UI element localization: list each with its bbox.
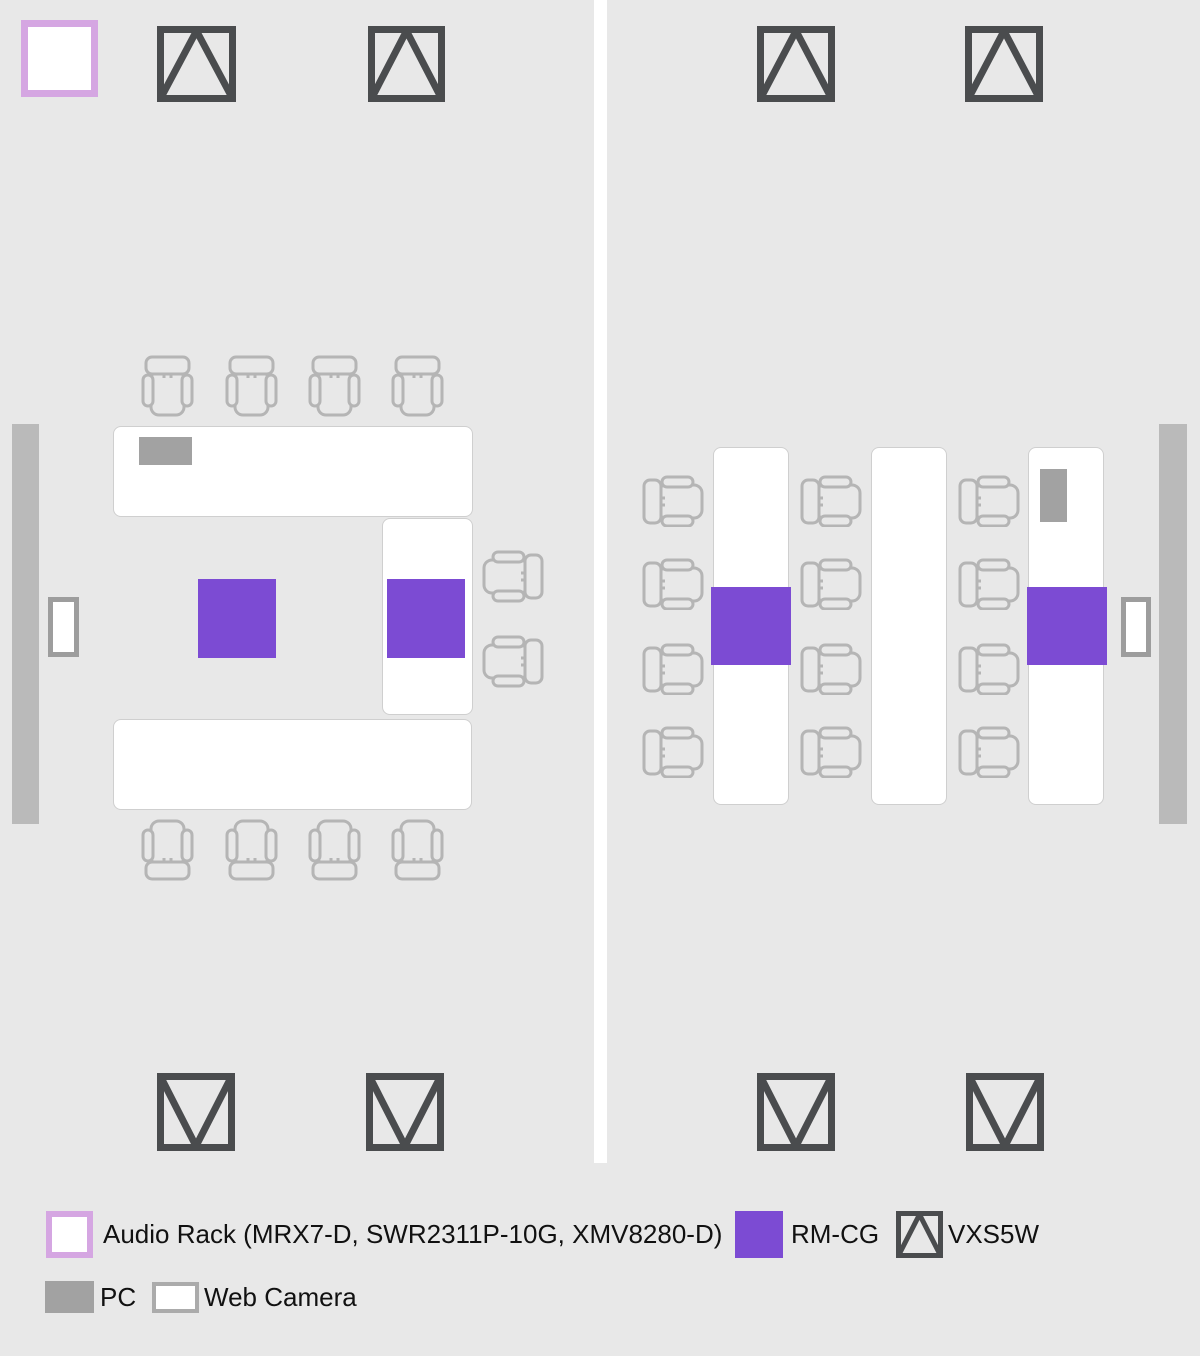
rm-cg-mic — [711, 587, 791, 665]
chair-icon — [800, 475, 862, 527]
vxs5w-speaker-icon — [366, 1073, 444, 1151]
chair-icon — [958, 643, 1020, 695]
vxs5w-speaker-icon — [896, 1211, 943, 1258]
web-camera — [1121, 597, 1151, 657]
chair-icon — [391, 819, 444, 881]
vxs5w-speaker-icon — [757, 26, 835, 102]
vxs5w-speaker-icon — [157, 26, 236, 102]
vxs5w-speaker-icon — [966, 1073, 1044, 1151]
chair-icon — [225, 355, 278, 417]
web-camera — [48, 597, 79, 657]
vxs5w-speaker-icon — [965, 26, 1043, 102]
chair-icon — [800, 726, 862, 778]
rm-cg-legend-swatch — [735, 1211, 783, 1258]
rm-cg-mic — [1027, 587, 1107, 665]
chair-icon — [800, 643, 862, 695]
vxs5w-speaker-icon — [757, 1073, 835, 1151]
chair-icon — [141, 819, 194, 881]
chair-icon — [308, 355, 361, 417]
vxs5w-speaker-icon — [368, 26, 445, 102]
chair-icon — [225, 819, 278, 881]
chair-icon — [642, 558, 704, 610]
display-screen — [1159, 424, 1187, 824]
rm-cg-mic — [387, 579, 465, 658]
web-camera-legend-label: Web Camera — [204, 1283, 357, 1312]
pc — [139, 437, 192, 465]
chair-icon — [958, 726, 1020, 778]
audio-rack-legend-label: Audio Rack (MRX7-D, SWR2311P-10G, XMV828… — [103, 1220, 722, 1249]
pc-legend-label: PC — [100, 1283, 136, 1312]
display-screen — [12, 424, 39, 824]
pc-legend-swatch — [45, 1281, 94, 1313]
chair-icon — [141, 355, 194, 417]
chair-icon — [391, 355, 444, 417]
floor-plan-canvas: Audio Rack (MRX7-D, SWR2311P-10G, XMV828… — [0, 0, 1200, 1356]
chair-icon — [482, 635, 544, 688]
vxs5w-speaker-icon — [157, 1073, 235, 1151]
pc — [1040, 469, 1067, 522]
chair-icon — [642, 475, 704, 527]
chair-icon — [958, 558, 1020, 610]
audio-rack-legend-swatch — [46, 1211, 93, 1258]
conference-table — [113, 719, 472, 810]
web-camera-legend-swatch — [152, 1282, 199, 1313]
chair-icon — [482, 550, 544, 603]
audio-rack — [21, 20, 98, 97]
vxs5w-legend-label: VXS5W — [948, 1220, 1039, 1249]
conference-table — [871, 447, 947, 805]
rm-cg-mic — [198, 579, 276, 658]
rm-cg-legend-label: RM-CG — [791, 1220, 879, 1249]
chair-icon — [642, 726, 704, 778]
chair-icon — [800, 558, 862, 610]
chair-icon — [642, 643, 704, 695]
room-divider — [594, 0, 607, 1163]
chair-icon — [308, 819, 361, 881]
chair-icon — [958, 475, 1020, 527]
